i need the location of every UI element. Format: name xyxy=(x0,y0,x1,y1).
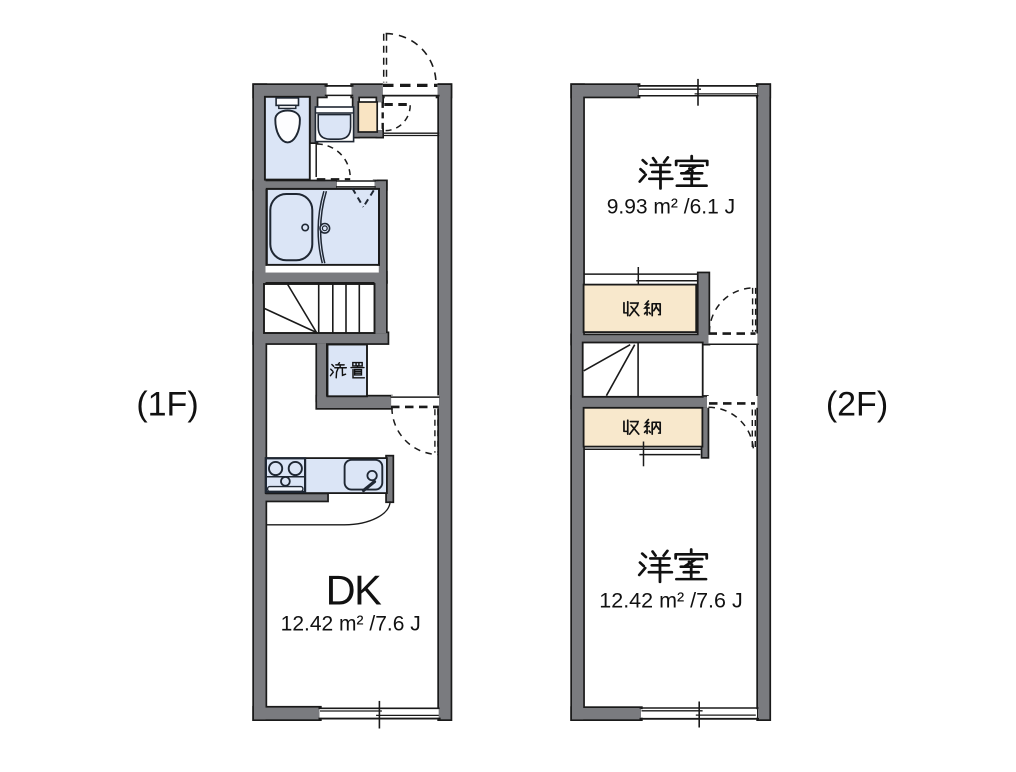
svg-text:9.93 m² /6.1 J: 9.93 m² /6.1 J xyxy=(607,196,735,219)
svg-text:(2F): (2F) xyxy=(826,386,888,424)
svg-text:(1F): (1F) xyxy=(136,386,198,424)
svg-text:12.42 m² /7.6 J: 12.42 m² /7.6 J xyxy=(599,589,742,613)
svg-text:DK: DK xyxy=(326,566,382,613)
svg-text:12.42 m² /7.6 J: 12.42 m² /7.6 J xyxy=(281,613,421,636)
